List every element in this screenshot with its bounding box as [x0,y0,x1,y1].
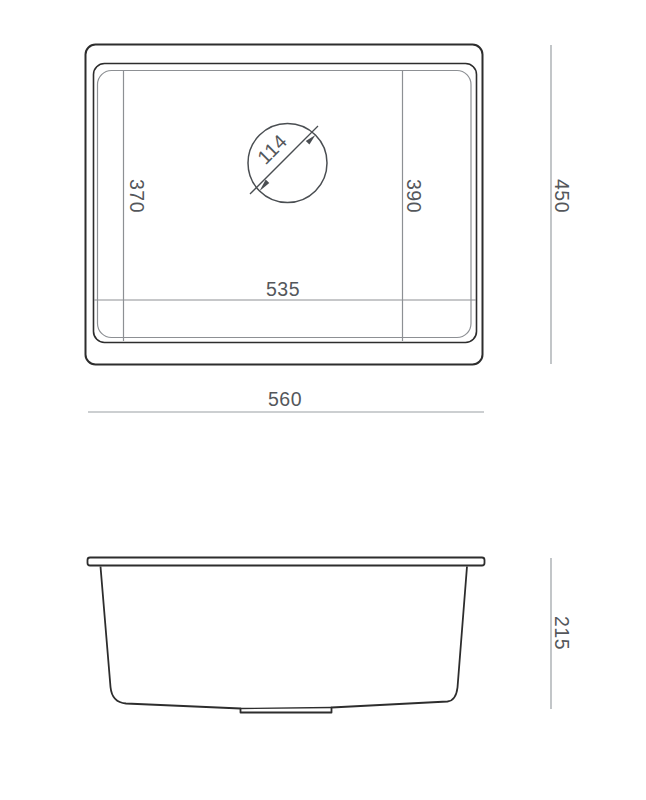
side-view-body-outline [101,567,468,713]
dimension-overall-width: 560 [88,388,484,412]
bowl-width-label: 535 [266,278,300,300]
overall-height-label: 215 [551,616,573,650]
dimension-overall-depth: 450 [551,45,573,364]
overall-width-label: 560 [268,388,302,410]
overall-depth-label: 450 [551,179,573,213]
side-view-drain-fitting [241,708,332,709]
sink-technical-drawing: 114 370 390 535 560 450 215 [0,0,646,800]
dimension-overall-height: 215 [551,558,573,709]
bowl-depth-right-label: 390 [403,179,425,213]
side-view-flange [88,558,485,566]
technical-drawing-canvas: 114 370 390 535 560 450 215 [0,0,646,800]
arrowhead-icon [260,179,270,191]
top-view: 114 370 390 535 [86,45,483,365]
bowl-depth-left-label: 370 [126,179,148,213]
side-view [88,558,485,713]
